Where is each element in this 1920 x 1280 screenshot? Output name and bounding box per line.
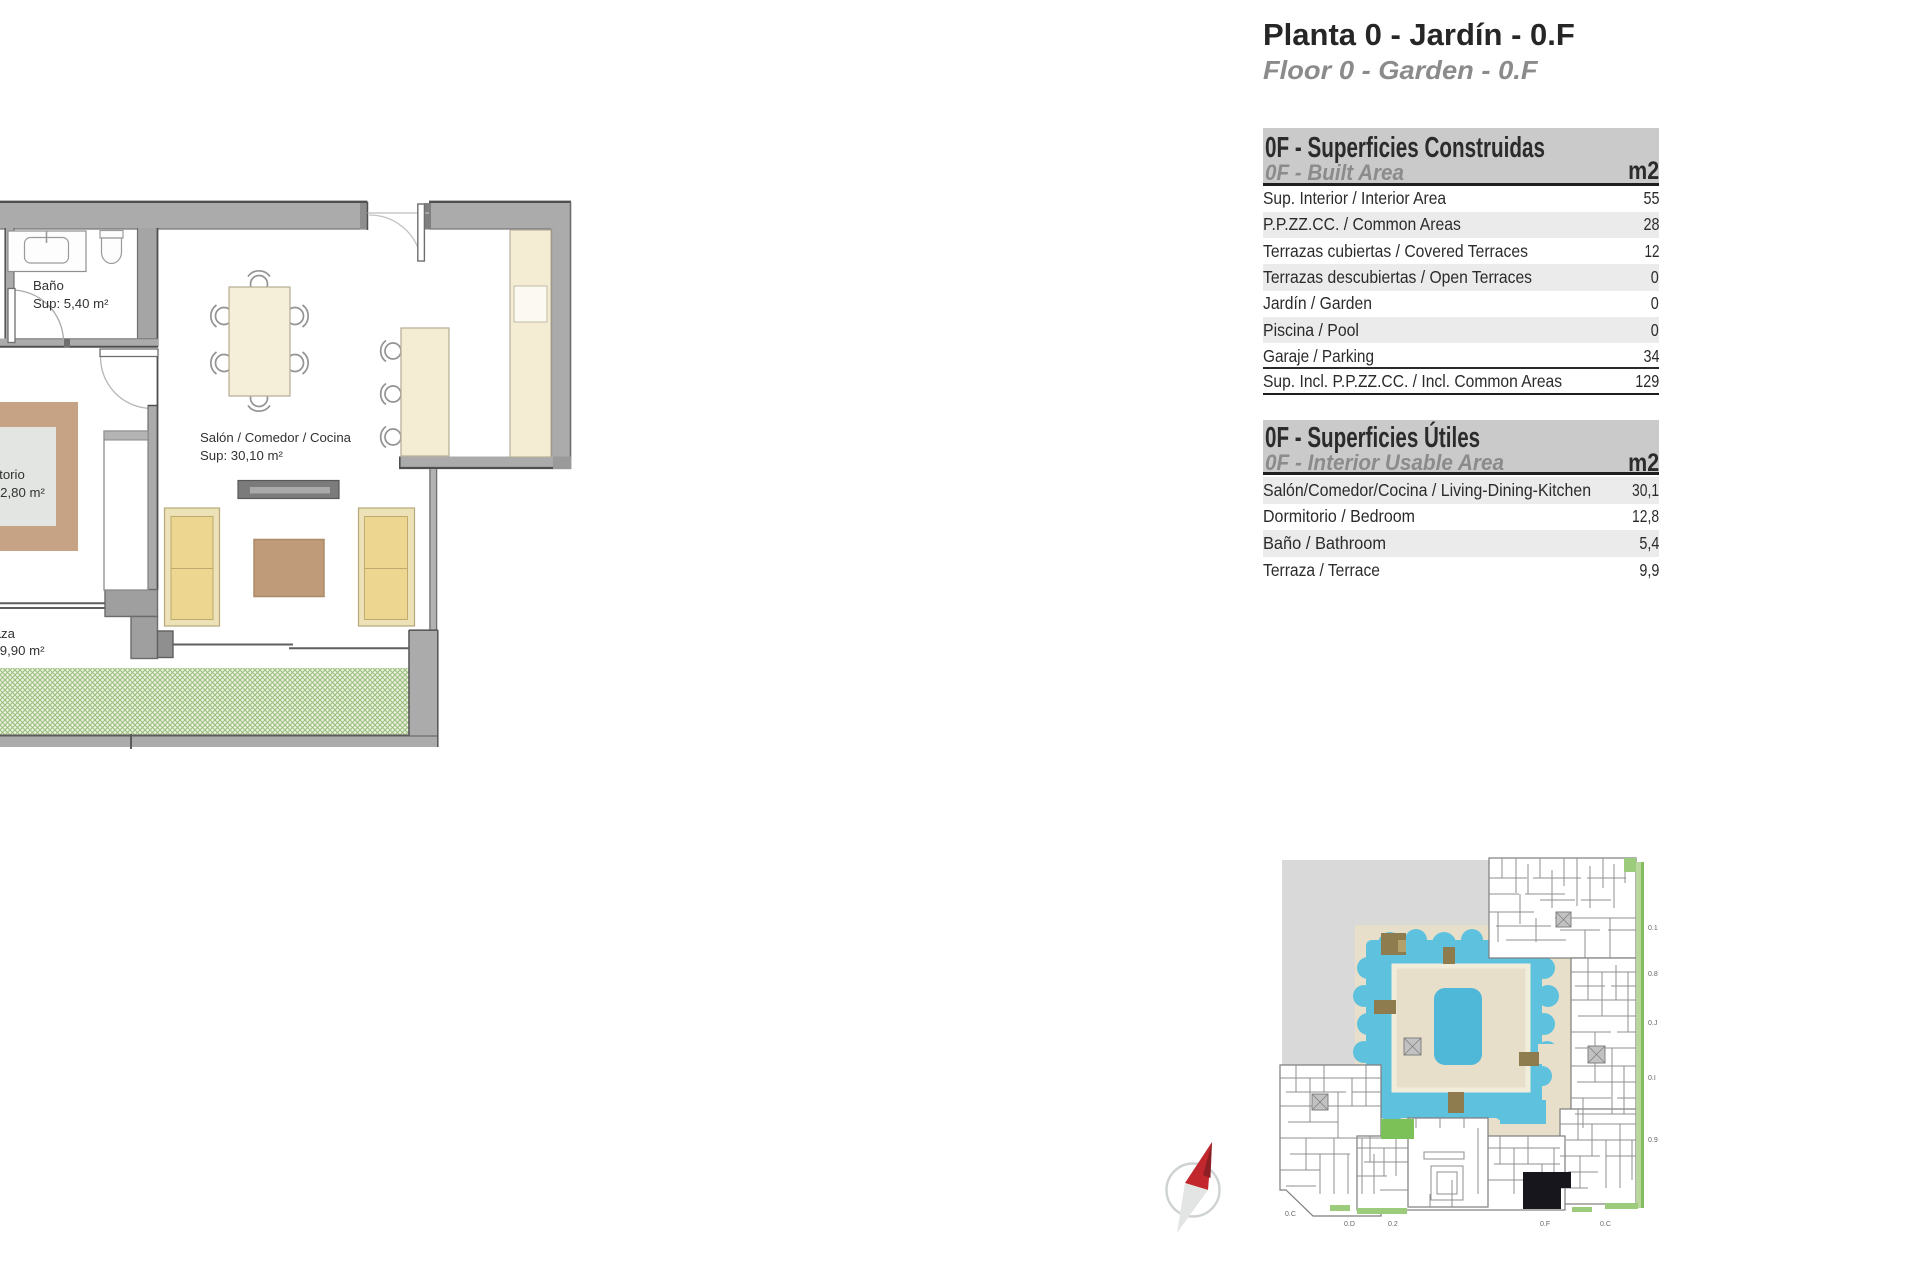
svg-text:0.C: 0.C (1600, 1221, 1611, 1228)
svg-text:Sup: 9,90 m²: Sup: 9,90 m² (0, 643, 45, 658)
svg-text:Sup: 12,80 m²: Sup: 12,80 m² (0, 485, 45, 500)
svg-text:0.1: 0.1 (1648, 925, 1658, 932)
svg-text:0.F: 0.F (1540, 1221, 1550, 1228)
svg-text:0.J: 0.J (1648, 1020, 1657, 1027)
svg-text:0.D: 0.D (1344, 1221, 1355, 1228)
svg-text:Salón / Comedor / Cocina: Salón / Comedor / Cocina (200, 430, 352, 445)
svg-text:Baño: Baño (33, 278, 64, 293)
svg-text:0.2: 0.2 (1388, 1221, 1398, 1228)
svg-text:Dormitorio: Dormitorio (0, 467, 25, 482)
svg-text:0.9: 0.9 (1648, 1137, 1658, 1144)
svg-text:Terraza: Terraza (0, 626, 16, 641)
svg-text:Sup: 5,40 m²: Sup: 5,40 m² (33, 296, 109, 311)
svg-text:0.I: 0.I (1648, 1075, 1656, 1082)
svg-text:0.C: 0.C (1285, 1211, 1296, 1218)
svg-text:0.8: 0.8 (1648, 971, 1658, 978)
svg-text:Sup: 30,10 m²: Sup: 30,10 m² (200, 448, 283, 463)
